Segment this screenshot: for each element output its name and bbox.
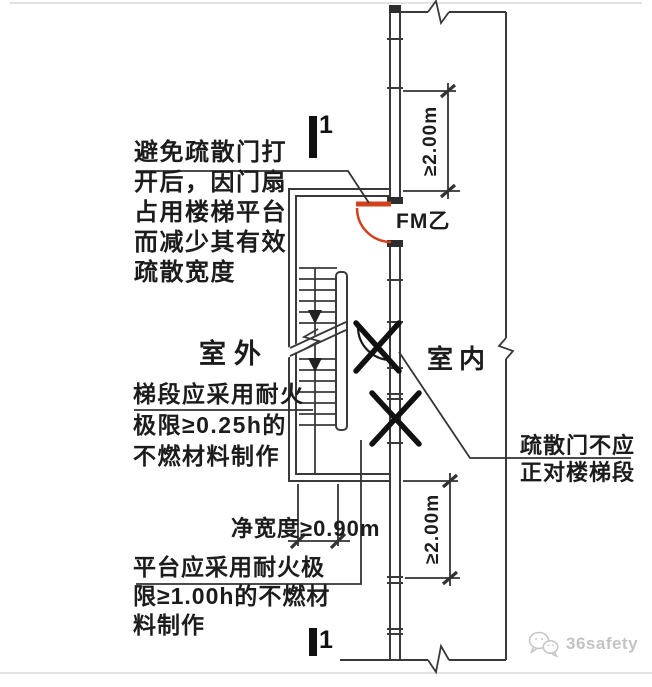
- break-mark-top: [428, 1, 449, 23]
- watermark-brand: 36safety: [566, 634, 638, 654]
- note-door-position: 疏散门不应 正对楼梯段: [520, 432, 635, 486]
- section-mark-number-bottom: 1: [319, 626, 333, 655]
- note-door-swing: 避免疏散门打 开后，因门扇 占用楼梯平台 而减少其有效 疏散宽度: [134, 138, 287, 288]
- break-mark-bottom: [428, 646, 449, 672]
- clear-width-dimension-label: 净宽度≥0.90m: [231, 511, 380, 543]
- section-mark-number-top: 1: [319, 111, 333, 140]
- note-line: 料制作: [133, 611, 330, 640]
- note-line: 极限≥0.25h的: [133, 410, 305, 441]
- dimension-label-top-right: ≥2.00m: [420, 81, 442, 201]
- note-line: 占用楼梯平台: [134, 198, 287, 228]
- note-line: 避免疏散门打: [134, 138, 287, 168]
- evacuation-door: [356, 204, 391, 242]
- wall-top-cap: [389, 5, 401, 13]
- walking-line-arrow-upper: [308, 310, 322, 324]
- note-line: 限≥1.00h的不燃材: [133, 582, 330, 611]
- handrail: [336, 272, 347, 430]
- note-line: 疏散门不应: [520, 432, 635, 459]
- indoor-label: 室内: [427, 339, 491, 376]
- dimension-label-bottom-right: ≥2.00m: [422, 469, 444, 589]
- watermark: 36safety: [527, 630, 638, 658]
- note-line: 梯段应采用耐火: [133, 379, 305, 410]
- wechat-icon: [527, 630, 560, 658]
- cross-mark-upper: [356, 323, 399, 371]
- note-line: 而减少其有效: [134, 228, 287, 258]
- note-line: 正对楼梯段: [520, 459, 635, 486]
- note-line: 平台应采用耐火极: [133, 553, 330, 582]
- door-swing-arc: [357, 208, 391, 242]
- fire-door-tag: FM乙: [396, 205, 450, 235]
- note-line: 不燃材料制作: [133, 441, 305, 472]
- outdoor-label: 室外: [199, 332, 269, 371]
- note-flight-fire-rating: 梯段应采用耐火 极限≥0.25h的 不燃材料制作: [133, 379, 305, 472]
- note-line: 疏散宽度: [134, 258, 287, 288]
- note-platform-fire-rating: 平台应采用耐火极 限≥1.00h的不燃材 料制作: [133, 553, 330, 640]
- break-mark-right: [499, 338, 513, 359]
- stair-plan-figure: 避免疏散门打 开后，因门扇 占用楼梯平台 而减少其有效 疏散宽度 室外 室内 F…: [0, 0, 652, 687]
- cross-mark-lower: [372, 393, 419, 444]
- note-line: 开后，因门扇: [134, 168, 287, 198]
- section-bar-top: [309, 116, 317, 158]
